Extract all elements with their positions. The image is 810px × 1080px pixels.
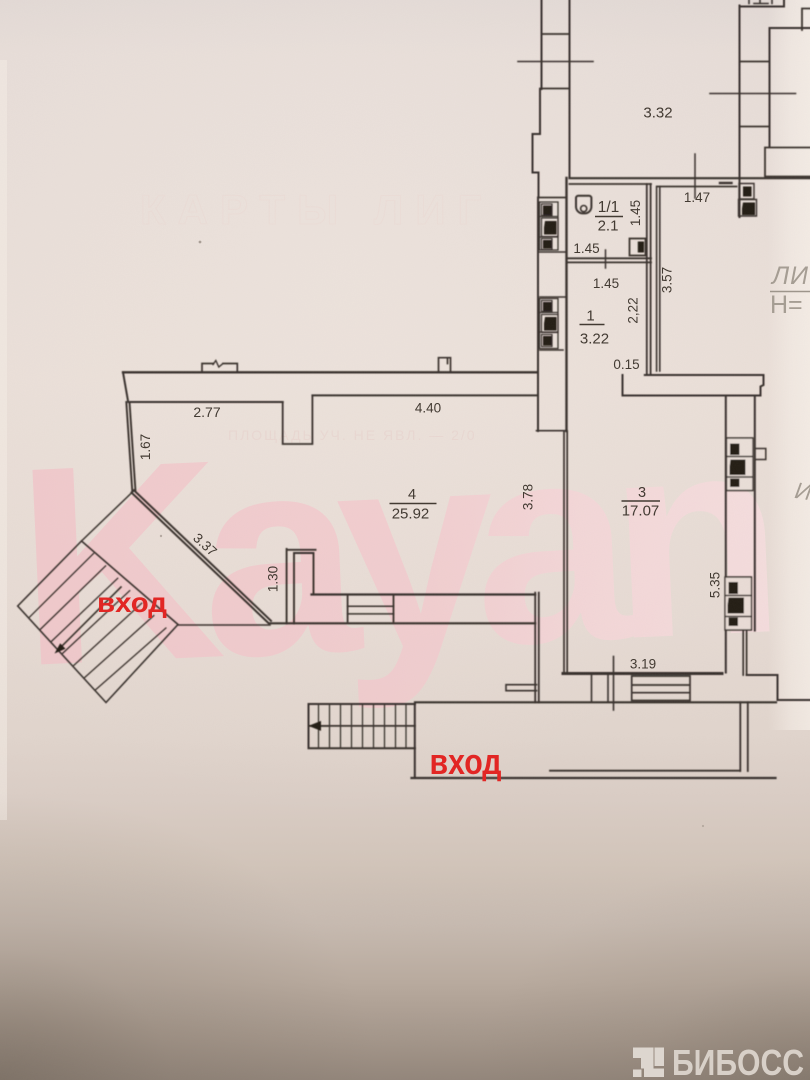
svg-text:Н=: Н= xyxy=(770,291,803,319)
svg-text:БИБОСС: БИБОСС xyxy=(672,1042,804,1080)
svg-text:И: И xyxy=(793,477,810,505)
svg-text:ЛИ: ЛИ xyxy=(770,262,809,290)
